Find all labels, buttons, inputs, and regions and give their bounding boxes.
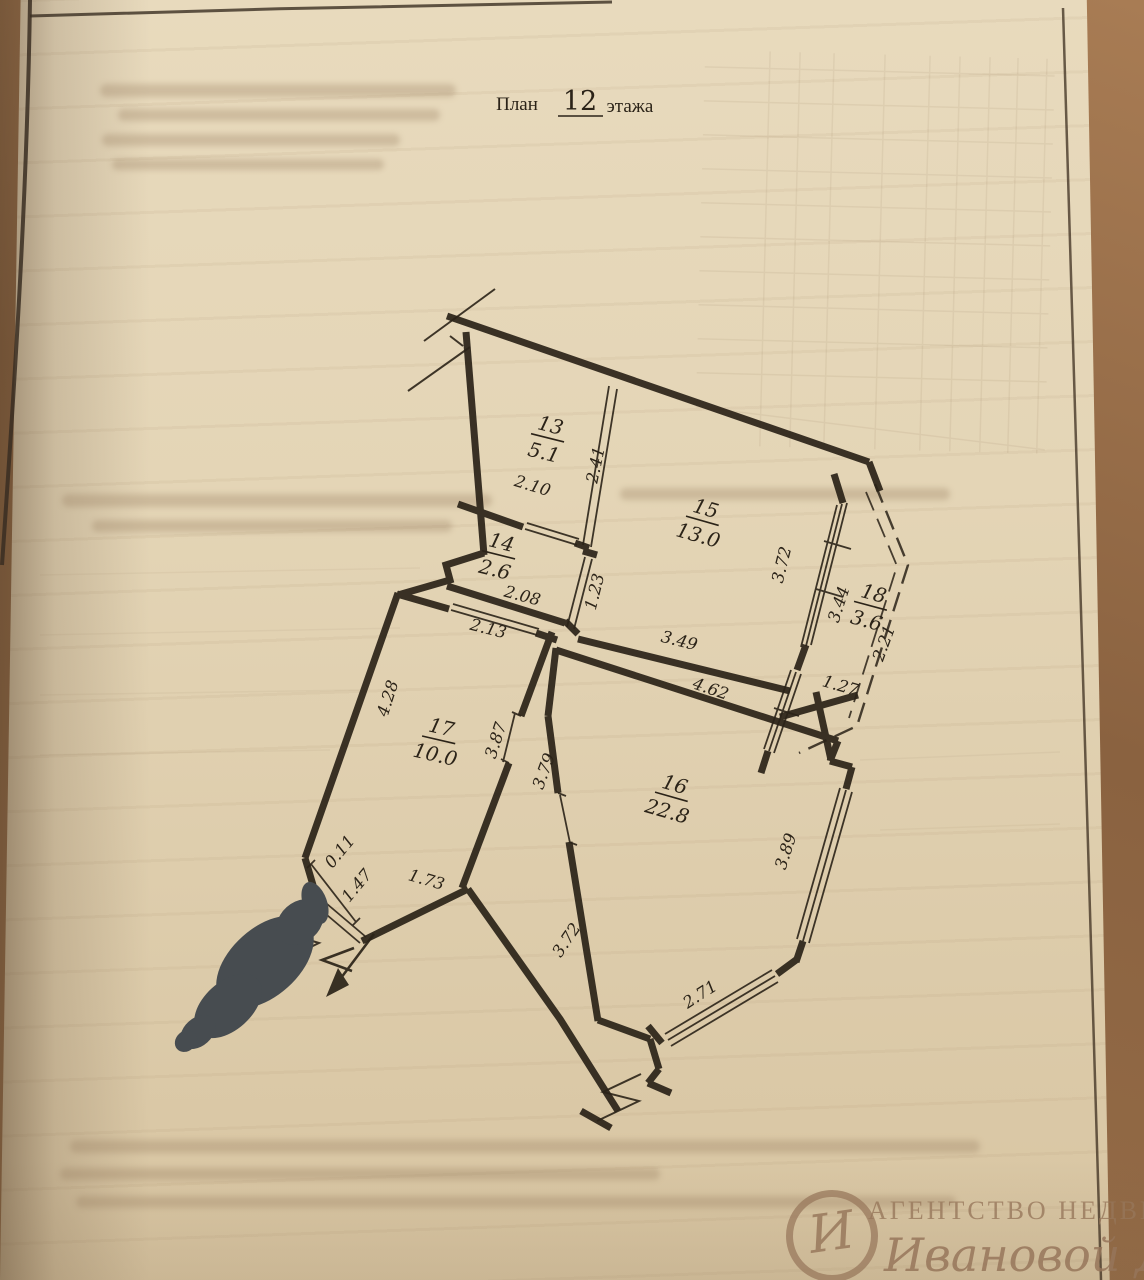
watermark-name-line: Ивановой Дарии [884, 1228, 1144, 1280]
dimension-label: 1.27 [820, 672, 861, 701]
watermark-agency-line: АГЕНТСТВО НЕДВИЖИМОСТИ [868, 1196, 1144, 1226]
room-label-15: 15 13.0 [674, 491, 731, 553]
plan-title: План 12 этажа [496, 86, 654, 117]
dimension-label: 3.72 [768, 545, 795, 585]
dimension-labels: 2.41 2.10 2.08 1.23 3.49 3.72 3.44 2.21 … [321, 445, 899, 1013]
room-label-16: 16 22.8 [642, 766, 700, 829]
bleedthrough-table-grid [695, 50, 1055, 454]
dimension-label: 1.47 [338, 865, 376, 906]
wall-break-symbol [286, 289, 641, 1121]
room-label-17: 17 10.0 [411, 710, 466, 771]
photo-of-floorplan-page: План 12 этажа [0, 0, 1144, 1280]
svg-text:22.8: 22.8 [642, 793, 692, 829]
top-page-edge [30, 2, 612, 16]
plan-title-floor-number: 12 [563, 86, 597, 117]
floor-plan-drawing: План 12 этажа [0, 0, 1144, 1280]
dimension-label: 3.49 [659, 627, 699, 654]
redaction-blob [170, 878, 333, 1056]
wall-lines [291, 316, 880, 1128]
agency-monogram: И [805, 1200, 858, 1266]
dimension-label: 2.41 [582, 445, 608, 486]
right-page-edge [1063, 8, 1101, 1280]
entrance-arrow [322, 934, 374, 997]
dimension-label: 1.73 [406, 866, 447, 894]
dimension-label: 2.10 [511, 471, 553, 500]
dimension-label: 1.23 [581, 572, 608, 612]
dimension-label: 0.11 [321, 831, 359, 871]
left-page-edge [2, 0, 30, 565]
dimension-label: 3.89 [771, 831, 800, 872]
svg-text:2.6: 2.6 [476, 554, 514, 585]
dimension-label: 3.87 [481, 719, 511, 760]
plan-title-prefix: План [496, 94, 538, 115]
plan-title-suffix: этажа [607, 96, 654, 117]
dimension-label: 3.44 [824, 584, 853, 625]
svg-text:13.0: 13.0 [674, 518, 724, 553]
dimension-label: 4.28 [373, 678, 403, 720]
room-label-13: 13 5.1 [525, 409, 571, 468]
svg-text:5.1: 5.1 [526, 437, 563, 468]
dimension-label: 2.71 [679, 976, 721, 1012]
